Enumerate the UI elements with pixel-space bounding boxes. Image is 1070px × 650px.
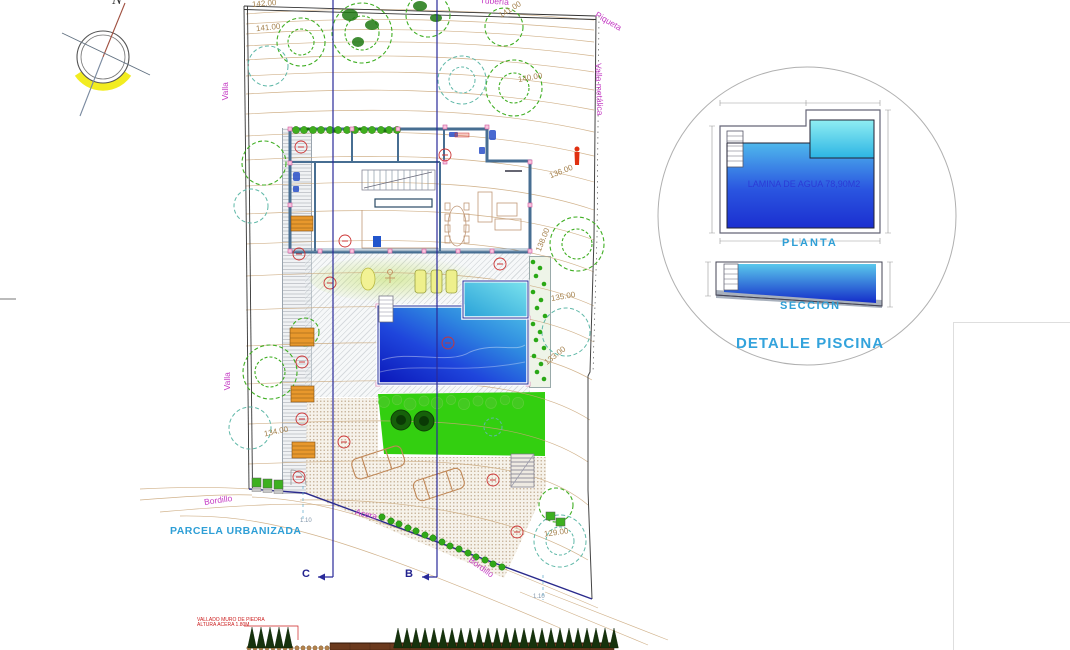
elevation-note-line2: ALTURA ACERA 1.80M <box>197 623 249 629</box>
water-area-label: LAMINA DE AGUA 78,90M2 <box>740 180 868 189</box>
pool-border <box>378 281 528 384</box>
detail-section-label: SECCION <box>780 301 841 312</box>
detail-plan-label: PLANTA <box>782 238 838 249</box>
overlay-linework <box>0 0 1070 650</box>
section-marker-b: B <box>405 569 413 580</box>
north-letter: N <box>112 0 122 8</box>
setback-dim: 1.10 <box>533 594 545 600</box>
fence-label: Valla <box>223 372 232 390</box>
site-plan-canvas: N 142.00 141.00 141.00 140.00 138.00 136… <box>0 0 1070 650</box>
setback-dim: 1.10 <box>300 518 312 524</box>
parcel-title: PARCELA URBANIZADA <box>170 526 302 537</box>
metal-fence-label: Valla metálica <box>594 63 604 116</box>
detail-overlays <box>716 120 882 306</box>
section-marker-c: C <box>302 569 310 580</box>
detail-title: DETALLE PISCINA <box>736 336 884 351</box>
section-lines <box>318 0 437 581</box>
fence-label: Valla <box>221 82 230 100</box>
